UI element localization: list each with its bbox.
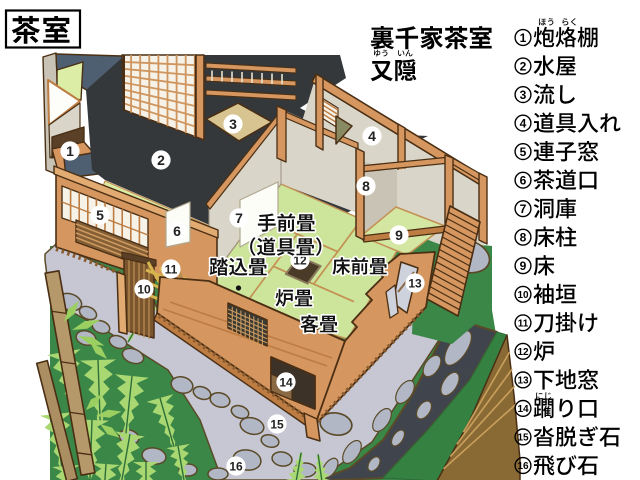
svg-text:11: 11 bbox=[518, 318, 529, 329]
svg-text:3: 3 bbox=[520, 88, 527, 102]
svg-text:6: 6 bbox=[520, 174, 527, 188]
svg-text:5: 5 bbox=[520, 145, 527, 159]
svg-text:10: 10 bbox=[517, 290, 529, 301]
svg-text:7: 7 bbox=[235, 210, 243, 226]
svg-text:16: 16 bbox=[517, 461, 529, 472]
svg-text:9: 9 bbox=[395, 227, 403, 243]
svg-text:8: 8 bbox=[362, 178, 370, 194]
svg-text:14: 14 bbox=[279, 375, 293, 389]
svg-text:3: 3 bbox=[229, 116, 237, 132]
svg-text:13: 13 bbox=[517, 376, 529, 387]
svg-text:6: 6 bbox=[173, 223, 181, 239]
svg-text:10: 10 bbox=[137, 282, 151, 296]
svg-text:5: 5 bbox=[96, 207, 104, 223]
svg-text:9: 9 bbox=[520, 259, 527, 273]
svg-text:16: 16 bbox=[229, 459, 243, 473]
svg-text:11: 11 bbox=[165, 262, 178, 276]
svg-text:2: 2 bbox=[157, 152, 165, 168]
svg-text:15: 15 bbox=[270, 417, 284, 431]
svg-text:8: 8 bbox=[520, 231, 527, 245]
svg-text:4: 4 bbox=[520, 116, 527, 130]
svg-text:4: 4 bbox=[368, 128, 376, 144]
svg-text:1: 1 bbox=[520, 31, 527, 45]
svg-text:12: 12 bbox=[517, 347, 529, 358]
svg-text:13: 13 bbox=[408, 276, 422, 290]
svg-text:15: 15 bbox=[517, 433, 529, 444]
svg-text:7: 7 bbox=[520, 202, 527, 216]
svg-text:1: 1 bbox=[66, 143, 74, 159]
svg-text:14: 14 bbox=[517, 404, 529, 415]
svg-text:2: 2 bbox=[520, 59, 527, 73]
